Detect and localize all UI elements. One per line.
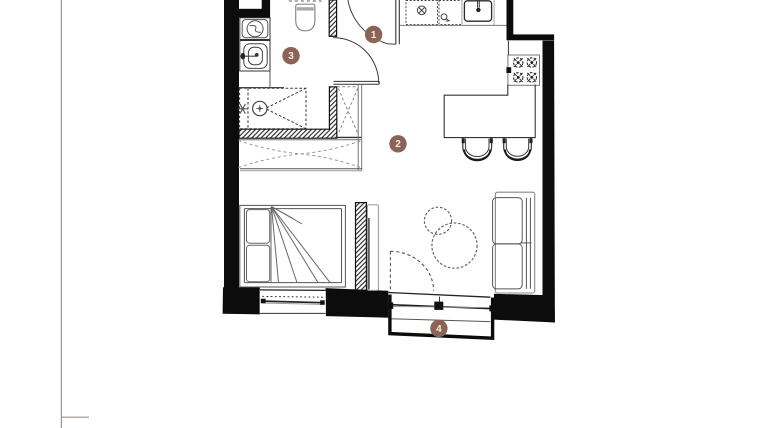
svg-text:3: 3 bbox=[288, 51, 294, 62]
svg-text:1: 1 bbox=[371, 30, 377, 41]
svg-text:2: 2 bbox=[395, 139, 401, 150]
svg-text:4: 4 bbox=[436, 324, 442, 335]
